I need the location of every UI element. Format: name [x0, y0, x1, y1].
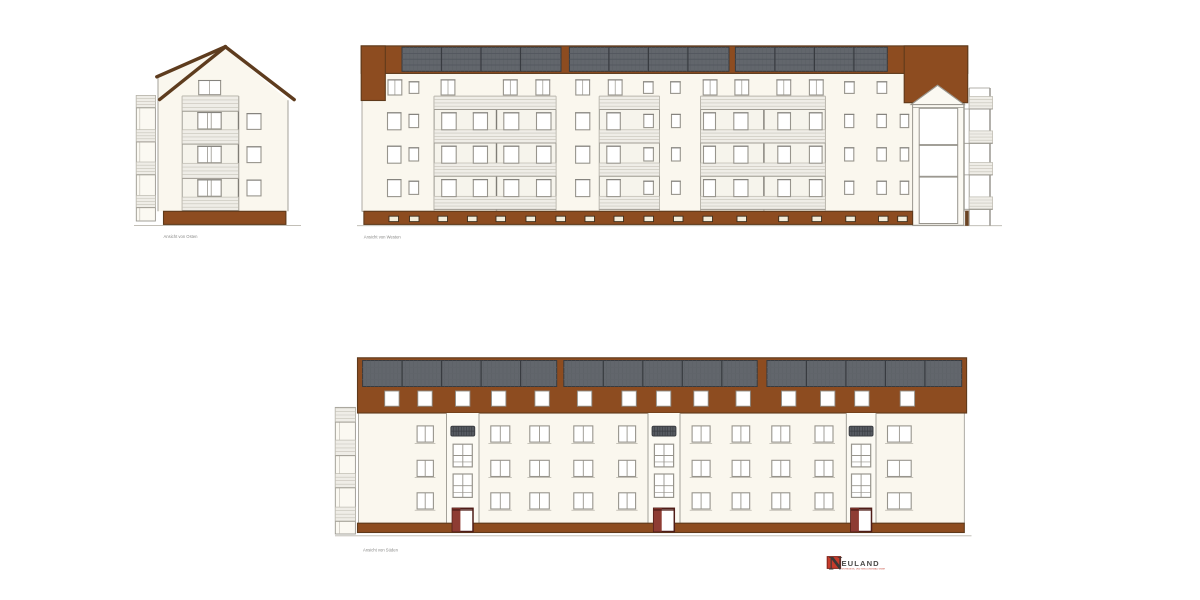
- svg-text:Ansicht von Süden: Ansicht von Süden: [363, 548, 399, 553]
- svg-text:WOHNUNGS- UND SIEDLUNGSBAU GMB: WOHNUNGS- UND SIEDLUNGSBAU GMBH: [842, 567, 886, 570]
- svg-text:EULAND: EULAND: [842, 559, 880, 568]
- svg-text:N: N: [829, 554, 843, 575]
- svg-text:Ansicht von Osten: Ansicht von Osten: [164, 234, 199, 239]
- svg-text:Ansicht von Westen: Ansicht von Westen: [364, 235, 402, 240]
